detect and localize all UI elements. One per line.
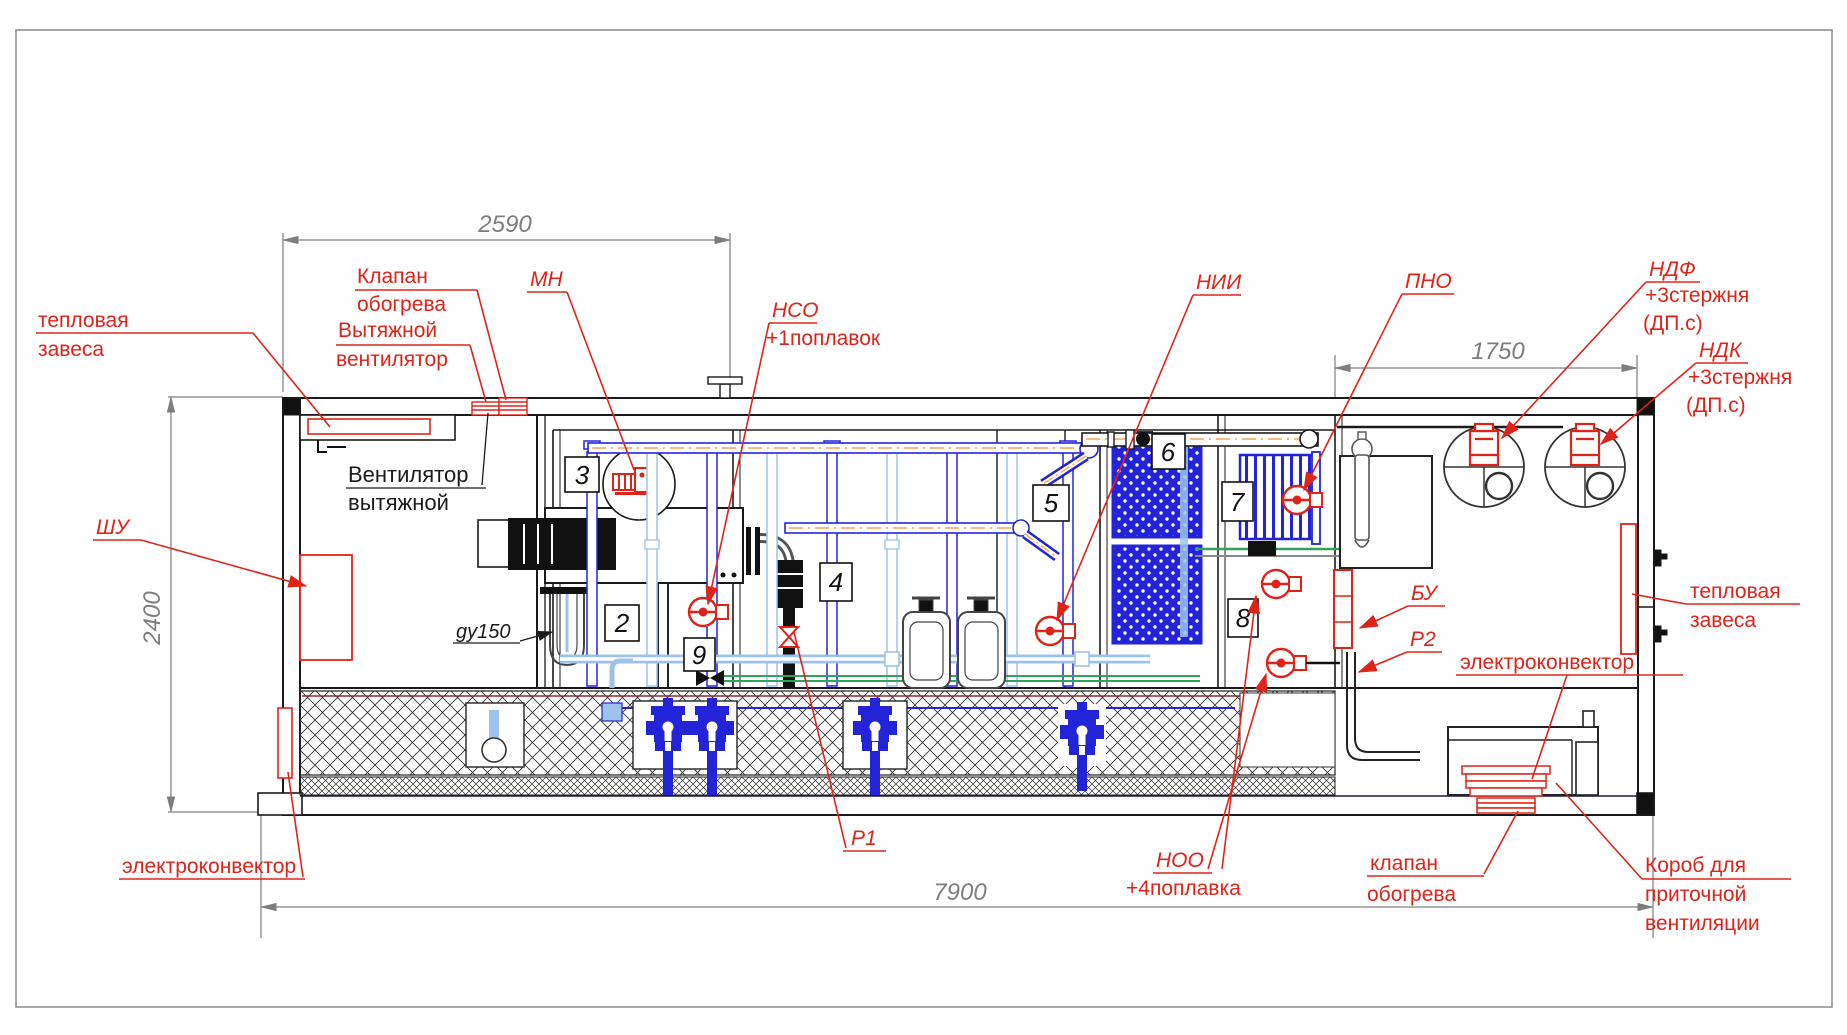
label-bu: БУ	[1411, 582, 1439, 605]
room-6: 6	[1161, 437, 1176, 467]
svg-text:+4поплавка: +4поплавка	[1126, 877, 1241, 900]
svg-text:вентилятор: вентилятор	[336, 348, 448, 371]
svg-text:обогрева: обогрева	[357, 293, 446, 316]
label-r1: Р1	[851, 827, 877, 850]
aeration-pipework	[560, 440, 1200, 688]
supply-vent-duct	[1576, 742, 1598, 795]
label-noo: НОО	[1156, 849, 1204, 872]
drawing-page: 2590 1750 2400 7900	[0, 0, 1847, 1035]
label-nii: НИИ	[1196, 271, 1242, 294]
label-ndk: НДК	[1699, 339, 1743, 362]
dim-7900: 7900	[933, 879, 987, 906]
electric-convector-right	[1448, 711, 1598, 813]
svg-text:приточной: приточной	[1645, 883, 1746, 906]
electric-convector-left	[278, 708, 292, 778]
uv-room	[1340, 424, 1636, 813]
label-exhaust-fan-black: Вентилятор	[348, 462, 468, 487]
label-exhaust-fan-red: Вытяжной	[338, 319, 437, 342]
svg-text:завеса: завеса	[1690, 609, 1756, 632]
svg-text:+3стержня: +3стержня	[1645, 284, 1749, 307]
dim-2400: 2400	[139, 591, 166, 646]
room-4: 4	[829, 567, 843, 597]
label-ndf: НДФ	[1649, 258, 1696, 281]
plant-layout-drawing: 2590 1750 2400 7900	[0, 0, 1847, 1035]
pump-noo-2	[1267, 649, 1306, 677]
label-nso: НСО	[772, 299, 818, 322]
svg-text:(ДП.с): (ДП.с)	[1643, 312, 1703, 335]
dosing-hatch-ndk	[1545, 424, 1625, 507]
label-pno: ПНО	[1405, 270, 1452, 293]
dim-1750: 1750	[1471, 338, 1525, 365]
room-5: 5	[1044, 488, 1059, 518]
label-shu: ШУ	[96, 516, 131, 539]
label-heater-right: электроконвектор	[1460, 651, 1634, 674]
svg-text:+1поплавок: +1поплавок	[766, 327, 881, 350]
room-7: 7	[1230, 487, 1246, 517]
dim-2590: 2590	[477, 211, 532, 238]
label-thermal-curtain-left: тепловая	[38, 309, 129, 332]
dosing-hatch-ndf	[1444, 424, 1524, 507]
label-heater-left: электроконвектор	[122, 855, 296, 878]
thermal-curtain-right-unit	[1621, 524, 1636, 654]
svg-text:обогрева: обогрева	[1367, 883, 1456, 906]
svg-text:вентиляции: вентиляции	[1645, 912, 1760, 935]
label-heating-valve-top: Клапан	[357, 265, 428, 288]
label-pipe-dn150: gy150	[456, 621, 511, 643]
label-heating-valve-bottom: клапан	[1370, 852, 1438, 875]
label-thermal-curtain-right: тепловая	[1690, 580, 1781, 603]
room-8: 8	[1236, 603, 1251, 633]
label-mn: МН	[530, 268, 563, 291]
label-supply-duct: Короб для	[1645, 854, 1746, 877]
svg-text:вытяжной: вытяжной	[348, 490, 449, 515]
svg-text:завеса: завеса	[38, 338, 104, 361]
room-9: 9	[692, 640, 706, 670]
control-unit-bu	[1334, 570, 1352, 648]
svg-text:+3стержня: +3стержня	[1688, 366, 1792, 389]
pump-noo-1	[1262, 570, 1301, 598]
room-3: 3	[575, 460, 590, 490]
control-cabinet-shu	[300, 555, 352, 660]
svg-text:(ДП.с): (ДП.с)	[1686, 394, 1746, 417]
room-2: 2	[614, 608, 630, 638]
label-r2: Р2	[1410, 628, 1436, 651]
pump-mn	[603, 448, 675, 520]
floor-heating-valve-grille	[1462, 766, 1550, 813]
